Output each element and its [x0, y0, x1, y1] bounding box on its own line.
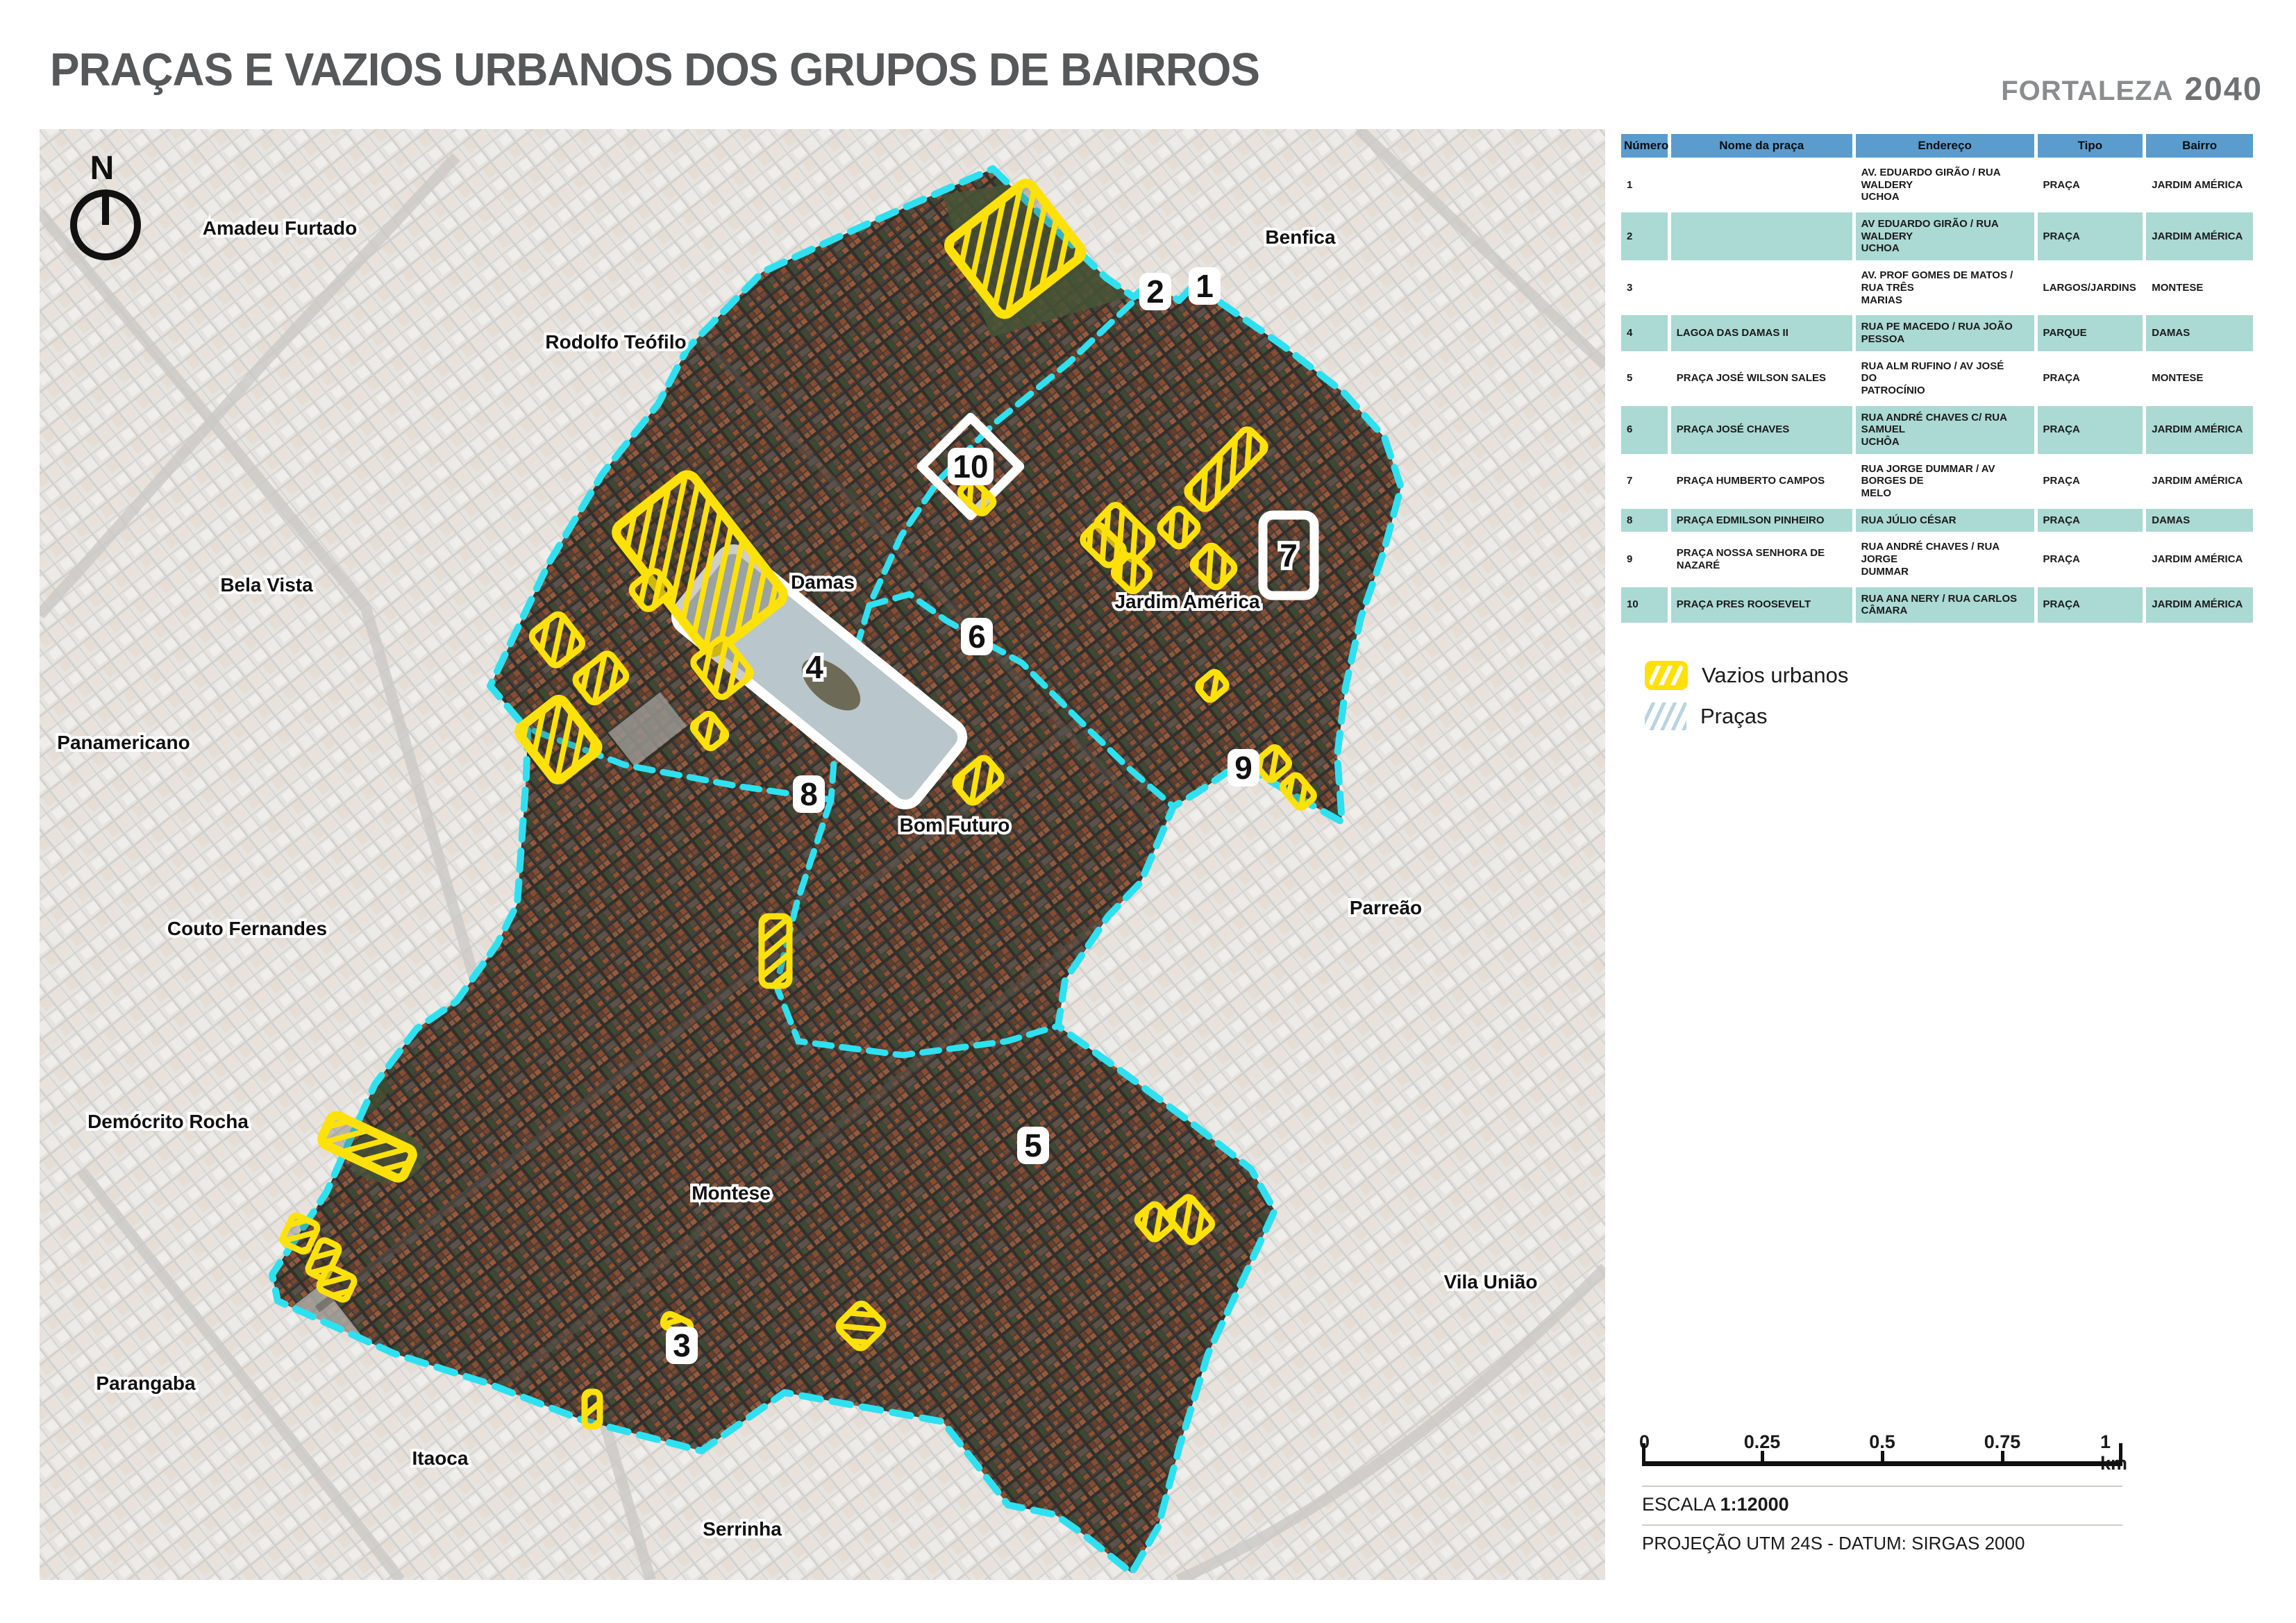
map-label-couto-fernandes: Couto Fernandes [167, 918, 327, 939]
marker-5: 5 [1017, 1127, 1049, 1164]
pracas-table: Número Nome da praça Endereço Tipo Bairr… [1618, 131, 2256, 626]
table-row: 7 PRAÇA HUMBERTO CAMPOS RUA JORGE DUMMAR… [1621, 457, 2253, 505]
map-label-democrito-rocha: Demócrito Rocha [87, 1111, 249, 1132]
map-label-rodolfo-teofilo: Rodolfo Teófilo [545, 331, 686, 353]
map-label-amadeu-furtado: Amadeu Furtado [203, 217, 357, 239]
scale-label-025: 0.25 [1744, 1431, 1781, 1453]
pracas-swatch-icon [1645, 703, 1686, 730]
map-label-benfica: Benfica [1265, 226, 1336, 248]
svg-text:3: 3 [673, 1327, 691, 1363]
page-title: PRAÇAS E VAZIOS URBANOS DOS GRUPOS DE BA… [50, 43, 1259, 96]
map-label-jardim-america: Jardim América [1114, 591, 1259, 612]
vazios-swatch-icon [1645, 661, 1688, 690]
marker-1: 1 [1189, 267, 1221, 305]
table-row: 8 PRAÇA EDMILSON PINHEIRO RUA JÚLIO CÉSA… [1621, 509, 2253, 532]
brand-logo: FORTALEZA 2040 [2001, 69, 2263, 108]
svg-text:7: 7 [1280, 537, 1298, 573]
scale-label-075: 0.75 [1984, 1431, 2021, 1453]
svg-text:N: N [90, 150, 115, 187]
map-label-itaoca: Itaoca [412, 1447, 469, 1469]
svg-text:8: 8 [800, 776, 818, 812]
table-header-row: Número Nome da praça Endereço Tipo Bairr… [1621, 134, 2253, 158]
legend-label: Vazios urbanos [1702, 663, 1848, 688]
col-header-numero: Número [1621, 134, 1668, 158]
legend-item-vazios: Vazios urbanos [1645, 661, 1848, 690]
col-header-bairro: Bairro [2146, 134, 2253, 158]
marker-8: 8 [793, 775, 825, 813]
escala-note: ESCALA 1:12000 [1642, 1486, 2122, 1515]
svg-text:5: 5 [1024, 1127, 1042, 1163]
marker-6: 6 [961, 618, 993, 655]
table-row: 9 PRAÇA NOSSA SENHORA DE NAZARÉ RUA ANDR… [1621, 535, 2253, 583]
marker-3: 3 [666, 1327, 698, 1364]
map-legend: Vazios urbanos Praças [1645, 661, 1848, 730]
svg-text:1: 1 [1196, 268, 1214, 304]
projecao-text: PROJEÇÃO UTM 24S - DATUM: SIRGAS 2000 [1642, 1533, 2025, 1554]
map-svg: 1 2 3 4 5 6 7 8 9 10 Amadeu Furtado Benf… [40, 129, 1605, 1580]
svg-text:10: 10 [953, 448, 988, 485]
scale-tick [1642, 1443, 1645, 1461]
scale-label-1km: 1 km [2100, 1431, 2127, 1474]
escala-label: ESCALA [1642, 1494, 1715, 1515]
brand-year: 2040 [2184, 69, 2263, 108]
scale-tick [1761, 1451, 1764, 1461]
col-header-endereco: Endereço [1856, 134, 2034, 158]
map-label-parangaba: Parangaba [96, 1372, 196, 1394]
table-row: 5 PRAÇA JOSÉ WILSON SALES RUA ALM RUFINO… [1621, 355, 2253, 403]
map-label-montese: Montese [692, 1182, 771, 1204]
svg-text:4: 4 [805, 649, 823, 685]
table-row: 3 AV. PROF GOMES DE MATOS / RUA TRÊS MAR… [1621, 264, 2253, 312]
table-row: 2 AV EDUARDO GIRÃO / RUA WALDERY UCHOA P… [1621, 212, 2253, 260]
table-row: 1 AV. EDUARDO GIRÃO / RUA WALDERY UCHOA … [1621, 161, 2253, 209]
map-label-vila-uniao: Vila União [1444, 1271, 1538, 1293]
scale-tick [2001, 1451, 2004, 1461]
legend-label: Praças [1700, 704, 1767, 729]
marker-2: 2 [1139, 273, 1171, 310]
marker-10: 10 [948, 448, 994, 485]
col-header-nome: Nome da praça [1671, 134, 1852, 158]
map-label-parreao: Parreão [1350, 897, 1422, 918]
marker-4: 4 [805, 649, 823, 685]
marker-7: 7 [1280, 537, 1298, 573]
escala-value: 1:12000 [1720, 1494, 1789, 1515]
map-label-bela-vista: Bela Vista [220, 574, 313, 596]
svg-text:6: 6 [968, 619, 986, 655]
map-label-serrinha: Serrinha [703, 1518, 782, 1540]
brand-name: FORTALEZA [2001, 76, 2173, 107]
scale-bar-line [1642, 1461, 2122, 1466]
col-header-tipo: Tipo [2038, 134, 2143, 158]
scale-bar: 0 0.25 0.5 0.75 1 km [1642, 1431, 2122, 1466]
map-label-panamericano: Panamericano [57, 732, 190, 753]
marker-9: 9 [1227, 749, 1259, 787]
page-root: { "header": { "title": "PRAÇAS E VAZIOS … [0, 0, 2296, 1623]
svg-text:2: 2 [1146, 274, 1164, 310]
scale-label-05: 0.5 [1869, 1431, 1895, 1453]
map-label-bom-futuro: Bom Futuro [900, 814, 1010, 836]
scale-tick [1881, 1451, 1884, 1461]
projecao-note: PROJEÇÃO UTM 24S - DATUM: SIRGAS 2000 [1642, 1524, 2122, 1554]
scale-tick [2119, 1443, 2122, 1461]
map-canvas: 1 2 3 4 5 6 7 8 9 10 Amadeu Furtado Benf… [40, 129, 1605, 1580]
legend-item-pracas: Praças [1645, 703, 1848, 730]
table-row: 10 PRAÇA PRES ROOSEVELT RUA ANA NERY / R… [1621, 587, 2253, 623]
table-row: 6 PRAÇA JOSÉ CHAVES RUA ANDRÉ CHAVES C/ … [1621, 406, 2253, 454]
map-label-damas: Damas [791, 571, 855, 593]
svg-text:9: 9 [1234, 750, 1252, 786]
table-row: 4 LAGOA DAS DAMAS II RUA PE MACEDO / RUA… [1621, 315, 2253, 351]
